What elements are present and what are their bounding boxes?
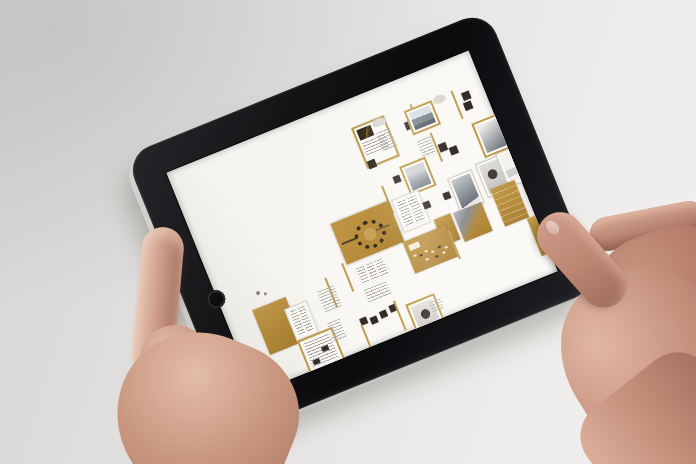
photo-square-thumbnail (392, 175, 401, 184)
text-column-block (364, 281, 391, 303)
photo-square-thumbnail (370, 316, 379, 325)
gold-spread-gear-ring (330, 201, 404, 265)
column-divider (341, 263, 354, 292)
photo-square-thumbnail (442, 191, 451, 200)
photo-square-thumbnail (449, 145, 459, 155)
cloud-marker (432, 93, 447, 105)
stray-dot (255, 291, 260, 296)
text-column-block (317, 285, 343, 314)
photo-scene (0, 0, 696, 464)
stray-dot (263, 292, 267, 296)
column-divider (361, 324, 372, 347)
gold-page-lines (490, 180, 529, 227)
photo-square-thumbnail (379, 310, 388, 319)
photo-square-thumbnail (422, 200, 431, 209)
photo-square-thumbnail (463, 101, 473, 111)
